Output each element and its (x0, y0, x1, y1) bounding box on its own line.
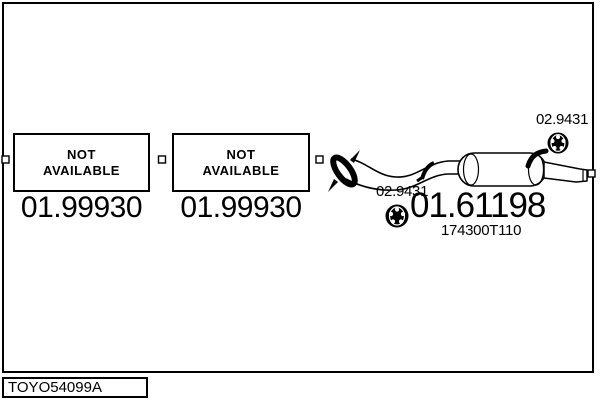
diagram-code: TOYO54099A (8, 379, 102, 396)
connector-marker (2, 156, 9, 163)
connector-marker (588, 170, 595, 177)
diagram-code-box: TOYO54099A (2, 377, 148, 398)
tail-pipe (544, 162, 587, 182)
connector-marker (316, 156, 323, 163)
rubber-mount-icon[interactable] (386, 205, 409, 228)
rubber-mount-icon[interactable] (548, 133, 569, 154)
front-flange-icon (328, 150, 360, 192)
silencer-oem-reference: 174300T110 (441, 223, 521, 238)
catalog-diagram-page: { "parts": { "placeholders": [ {"label_l… (0, 0, 600, 400)
silencer-part-number[interactable]: 01.61198 (410, 188, 545, 223)
connector-marker (159, 156, 166, 163)
hanger-part-number-top[interactable]: 02.9431 (536, 112, 588, 127)
